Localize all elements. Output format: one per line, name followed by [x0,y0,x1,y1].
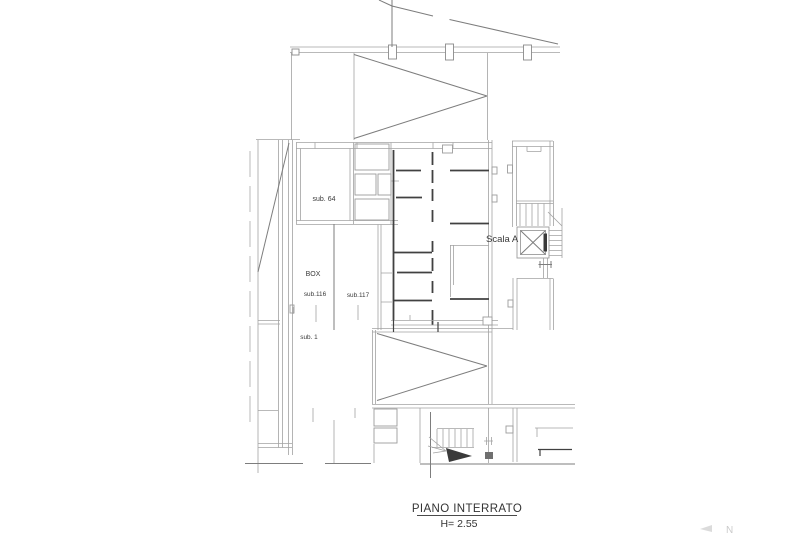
north-letter: N [726,525,733,533]
left-retaining-walls [250,140,293,473]
beam-post-icon [292,49,299,55]
room-sub64: sub. 64 [296,143,398,225]
beam-post-icon [446,44,454,60]
right-wing: Scala A [486,141,573,462]
stair-label-scala-a: Scala A [486,234,519,245]
plan-title: PIANO INTERRATO [412,503,522,515]
stall-label-sub117: sub.117 [347,292,370,299]
floor-plan-drawing: sub. 64 [0,0,800,533]
site-beam [290,44,560,140]
north-mark: N [700,525,733,533]
elevator-shaft-icon [517,227,549,258]
beam-post-icon [524,45,532,60]
stall-label-sub1: sub. 1 [300,334,318,341]
stall-label-box: BOX [306,271,321,278]
storage-rooms [355,143,399,331]
title-block: PIANO INTERRATO H= 2.55 [412,503,522,530]
plan-height-note: H= 2.55 [440,518,477,530]
box-parking-area: BOX sub.116 sub.117 sub. 1 [290,224,370,463]
floor-plan-page: sub. 64 [0,0,800,533]
upper-ramp-arrow-icon [379,0,558,47]
ground-line [245,464,575,465]
north-arrow-icon [700,525,712,532]
lower-ramp-arrow-icon [372,320,575,408]
winder-stair-icon [428,429,474,463]
beam-post-icon [389,45,397,59]
lower-garage [313,408,493,478]
stall-label-sub116: sub.116 [304,291,327,298]
room-label-sub64: sub. 64 [313,196,336,203]
top-ramp-arrow-icon [354,53,488,140]
